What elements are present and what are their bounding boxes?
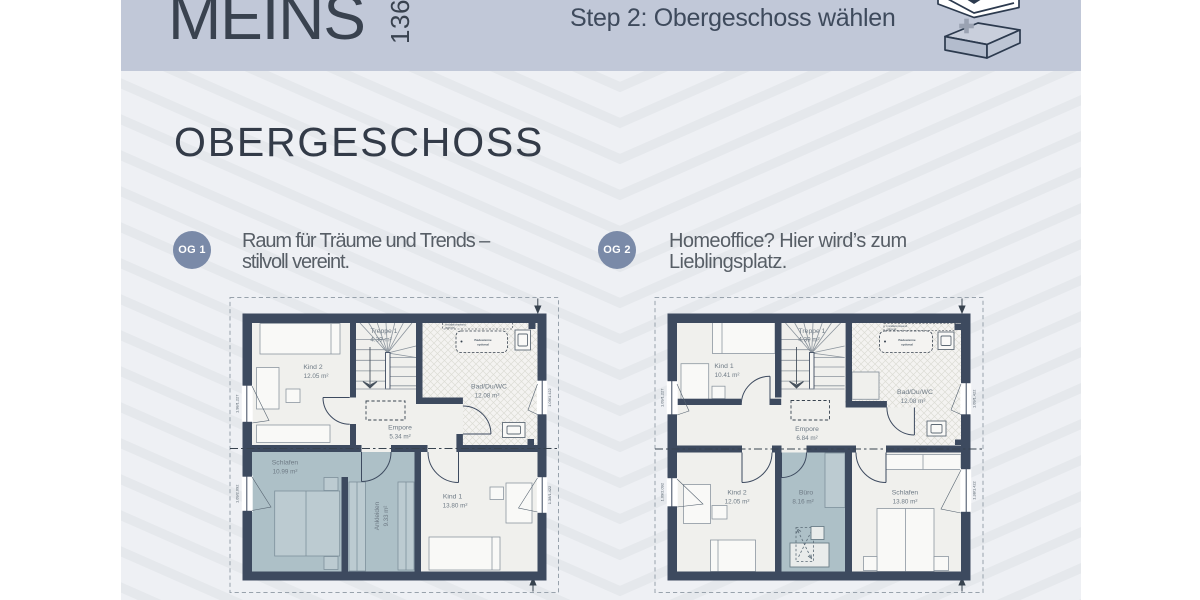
svg-text:13.80 m²: 13.80 m² — [893, 498, 918, 505]
svg-text:1.09/1.227: 1.09/1.227 — [659, 389, 664, 407]
svg-text:10.41 m²: 10.41 m² — [715, 372, 740, 379]
svg-text:Treppe 1: Treppe 1 — [371, 328, 398, 335]
svg-text:Kind 1: Kind 1 — [714, 363, 733, 370]
svg-text:4.39 m²: 4.39 m² — [370, 337, 391, 344]
svg-text:optional: optional — [477, 343, 489, 347]
svg-text:6.84 m²: 6.84 m² — [796, 435, 817, 442]
svg-text:Bad/Du/WC: Bad/Du/WC — [471, 384, 507, 391]
svg-text:optional: optional — [445, 326, 455, 330]
svg-text:optional: optional — [901, 343, 913, 347]
svg-text:1.38/1.422: 1.38/1.422 — [547, 486, 552, 504]
svg-text:4.39 m²: 4.39 m² — [798, 337, 819, 344]
svg-text:Badewanne: Badewanne — [474, 338, 491, 342]
svg-text:12.05 m²: 12.05 m² — [725, 498, 750, 505]
svg-text:1.09/2.092: 1.09/2.092 — [659, 483, 664, 501]
svg-text:Badewanne: Badewanne — [898, 338, 915, 342]
svg-text:1.09/2.092: 1.09/2.092 — [234, 485, 239, 503]
svg-text:Schlafen: Schlafen — [272, 460, 299, 467]
svg-text:9.33 m²: 9.33 m² — [383, 506, 390, 527]
svg-text:optional: optional — [887, 327, 897, 331]
svg-text:1.09/1.422: 1.09/1.422 — [547, 388, 552, 406]
svg-text:Empore: Empore — [388, 425, 412, 432]
svg-text:12.08 m²: 12.08 m² — [901, 398, 926, 405]
svg-text:1.98/1.227: 1.98/1.227 — [234, 395, 239, 413]
svg-text:13.80 m²: 13.80 m² — [443, 502, 468, 509]
svg-text:Treppe 1: Treppe 1 — [799, 328, 826, 335]
svg-text:10.99 m²: 10.99 m² — [273, 468, 298, 475]
svg-text:12.05 m²: 12.05 m² — [304, 373, 329, 380]
svg-text:Kind 2: Kind 2 — [727, 490, 746, 497]
svg-text:Schlafen: Schlafen — [892, 490, 919, 497]
svg-text:Empore: Empore — [795, 426, 819, 433]
svg-text:Kind 2: Kind 2 — [303, 364, 322, 371]
svg-text:Ankleiden: Ankleiden — [374, 501, 381, 530]
svg-text:Büro: Büro — [799, 490, 814, 497]
svg-text:Bad/Du/WC: Bad/Du/WC — [897, 389, 933, 396]
svg-text:1.09/1.422: 1.09/1.422 — [972, 390, 977, 408]
svg-text:8.16 m²: 8.16 m² — [792, 498, 813, 505]
svg-text:12.08 m²: 12.08 m² — [475, 392, 500, 399]
svg-text:5.34 m²: 5.34 m² — [389, 433, 410, 440]
svg-text:Kind 1: Kind 1 — [443, 494, 462, 501]
svg-text:1.38/1.422: 1.38/1.422 — [972, 481, 977, 499]
